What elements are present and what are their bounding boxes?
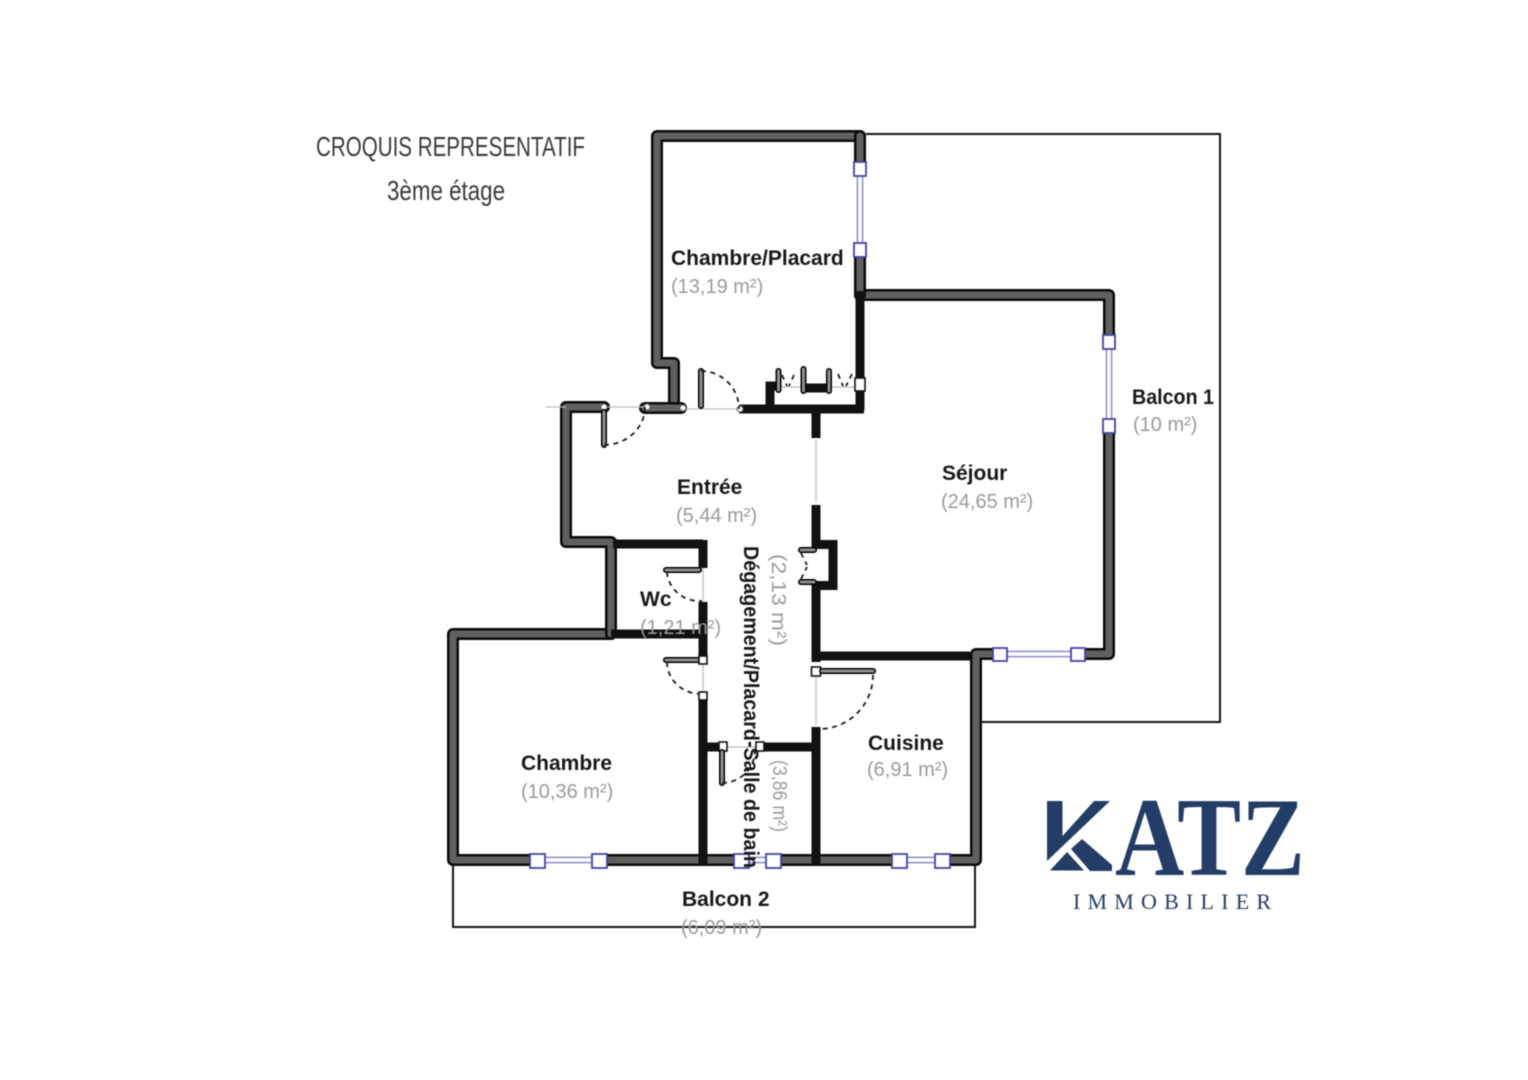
- svg-text:(10 m²): (10 m²): [1133, 414, 1197, 436]
- svg-text:(24,65 m²): (24,65 m²): [941, 491, 1033, 513]
- svg-text:3ème étage: 3ème étage: [387, 175, 505, 206]
- svg-text:(1,21 m²): (1,21 m²): [640, 617, 721, 639]
- svg-text:Cuisine: Cuisine: [868, 732, 944, 755]
- svg-text:Chambre/Placard: Chambre/Placard: [671, 247, 844, 270]
- svg-text:Entrée: Entrée: [677, 476, 742, 499]
- svg-text:Chambre: Chambre: [521, 752, 612, 775]
- svg-text:IMMOBILIER: IMMOBILIER: [1073, 889, 1278, 914]
- svg-text:(6,91 m²): (6,91 m²): [867, 759, 948, 781]
- svg-text:(3,86 m²): (3,86 m²): [768, 760, 790, 832]
- svg-text:CROQUIS REPRESENTATIF: CROQUIS REPRESENTATIF: [316, 131, 585, 162]
- svg-text:ATZ: ATZ: [1115, 776, 1305, 900]
- svg-text:(2,13 m²): (2,13 m²): [767, 554, 789, 646]
- svg-text:(10,36 m²): (10,36 m²): [521, 781, 613, 803]
- svg-text:Balcon 1: Balcon 1: [1132, 386, 1214, 409]
- svg-text:(13,19 m²): (13,19 m²): [671, 276, 763, 298]
- svg-text:Séjour: Séjour: [942, 462, 1007, 485]
- svg-text:Dégagement/Placard-Salle de ba: Dégagement/Placard-Salle de bain: [739, 546, 762, 868]
- svg-text:(6,09 m²): (6,09 m²): [681, 917, 762, 939]
- svg-text:(5,44 m²): (5,44 m²): [676, 505, 757, 527]
- svg-text:Balcon 2: Balcon 2: [682, 888, 770, 911]
- svg-text:Wc: Wc: [640, 588, 672, 611]
